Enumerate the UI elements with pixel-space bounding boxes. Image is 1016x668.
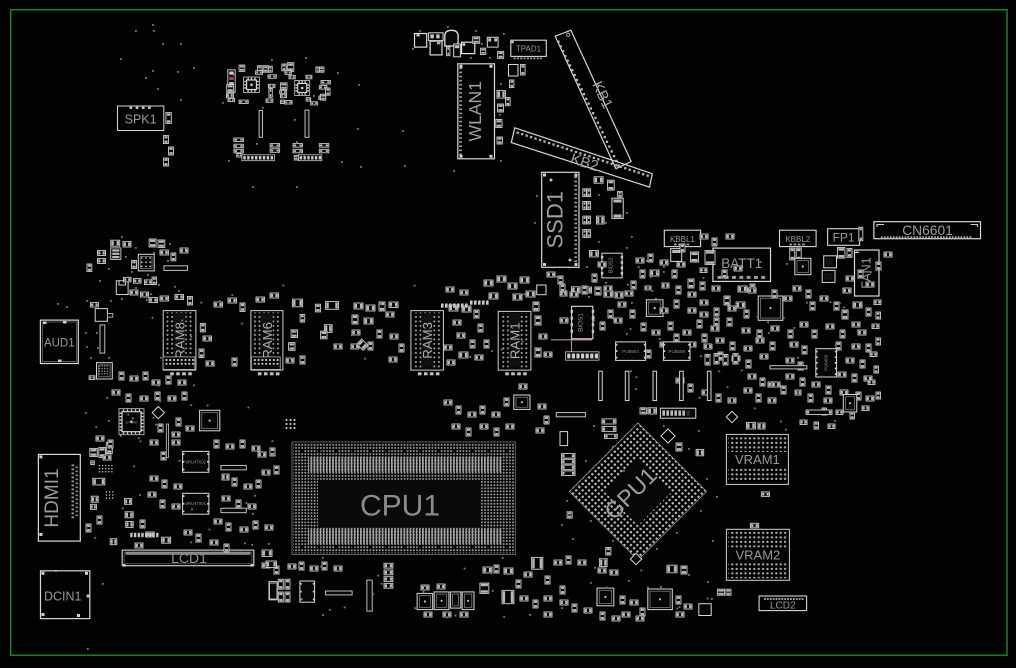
svg-text:WLAN1: WLAN1 <box>465 81 485 141</box>
svg-text:RAM8: RAM8 <box>173 322 188 359</box>
svg-text:VRAM1: VRAM1 <box>735 452 780 467</box>
svg-text:RAM1: RAM1 <box>508 322 523 359</box>
svg-text:SPK1: SPK1 <box>125 113 157 127</box>
svg-text:PU8904: PU8904 <box>622 349 639 354</box>
svg-text:FP1: FP1 <box>833 231 855 245</box>
svg-text:TPAD1: TPAD1 <box>516 44 542 53</box>
svg-text:PU8509: PU8509 <box>668 349 685 354</box>
svg-text:DCIN1: DCIN1 <box>44 590 82 604</box>
svg-text:KBBL2: KBBL2 <box>785 235 810 244</box>
svg-text:CPU1: CPU1 <box>360 490 440 523</box>
svg-text:BIOS2: BIOS2 <box>609 258 615 273</box>
svg-text:VRAM2: VRAM2 <box>736 547 781 562</box>
svg-text:RAM6: RAM6 <box>260 322 275 359</box>
svg-text:U7800: U7800 <box>126 420 139 425</box>
svg-text:BIOS1: BIOS1 <box>577 313 584 332</box>
svg-text:RAM3: RAM3 <box>420 322 435 359</box>
svg-text:AUD1: AUD1 <box>44 338 75 350</box>
svg-text:LCD1: LCD1 <box>171 550 207 566</box>
svg-text:CN6601: CN6601 <box>902 223 953 238</box>
svg-text:9RU4T001: 9RU4T001 <box>186 501 207 506</box>
svg-text:LCD2: LCD2 <box>770 601 796 612</box>
svg-text:9RU4T002: 9RU4T002 <box>186 459 207 464</box>
svg-text:HDMI1: HDMI1 <box>42 468 63 527</box>
svg-text:SSD1: SSD1 <box>543 191 568 248</box>
svg-text:PU8409: PU8409 <box>824 354 829 370</box>
svg-text:KBBL1: KBBL1 <box>670 235 695 244</box>
